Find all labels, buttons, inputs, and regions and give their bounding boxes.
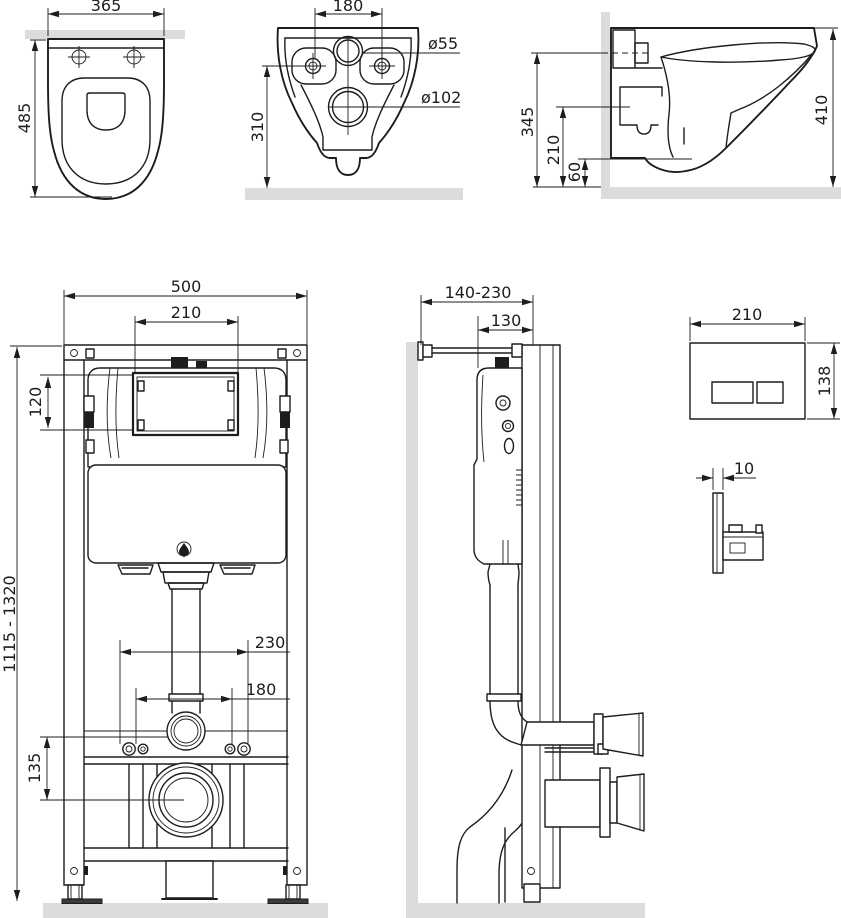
- frame-front-view: 500 210 120 1115 - 1320 230 180 135: [0, 277, 328, 918]
- concealed-cistern: [84, 357, 290, 589]
- frame-side-view: 140-230 130: [406, 283, 645, 918]
- dim-height-range: 1115 - 1320: [0, 575, 19, 672]
- dim-plate-thickness: 10: [734, 459, 754, 478]
- floor-section: [245, 188, 463, 200]
- flush-plate: [690, 343, 805, 419]
- dim-outlet-height: 310: [248, 112, 267, 143]
- plate-profile: [713, 493, 723, 573]
- dim-fixing-spacing-outer: 230: [255, 633, 286, 652]
- flush-pipe: [84, 589, 288, 764]
- floor-section: [601, 187, 841, 199]
- installation-drawing-page: 365 485 180 ø55 ø102 310: [0, 0, 841, 918]
- dim-wall-offset-range: 140-230: [445, 283, 512, 302]
- flush-bend-connector: [158, 563, 214, 589]
- seat-profile: [661, 43, 815, 62]
- inspection-window: [133, 373, 238, 435]
- dim-drain-height: 135: [25, 753, 44, 784]
- bowl-opening: [87, 93, 125, 130]
- flush-plate-side-view: 10: [696, 459, 763, 573]
- plate-mechanism: [723, 525, 763, 560]
- dim-top-depth: 485: [15, 103, 34, 134]
- floor-section: [43, 903, 328, 918]
- wall-section: [406, 342, 418, 917]
- toilet-top-view: 365 485: [15, 0, 185, 199]
- technical-drawing: 365 485 180 ø55 ø102 310: [0, 0, 841, 918]
- mounting-bolt-marks: [68, 46, 145, 68]
- toilet-bowl-outline: [48, 39, 164, 199]
- toilet-back-view: 180 ø55 ø102 310: [245, 0, 463, 200]
- toilet-side-outline: [611, 28, 817, 172]
- cistern-side: [474, 357, 522, 564]
- dim-outlet-height: 210: [544, 135, 563, 166]
- inlet-connector: [613, 30, 635, 68]
- outlet-connector: [620, 87, 662, 134]
- flush-pipe-side: [487, 564, 527, 745]
- dim-plate-width: 210: [732, 305, 763, 324]
- dim-window-width: 210: [171, 303, 202, 322]
- dim-inlet-height: 345: [518, 107, 537, 138]
- toilet-side-view: 345 210 60 410: [518, 12, 841, 199]
- dim-outlet-diameter: ø102: [421, 88, 461, 107]
- dim-depth: 410: [812, 95, 831, 126]
- waste-elbow: [457, 770, 529, 903]
- wall-section: [25, 30, 185, 39]
- seat-ring: [62, 78, 150, 184]
- dim-bolt-spacing: 180: [333, 0, 364, 15]
- dim-rim-clearance: 60: [565, 162, 584, 182]
- dim-frame-width: 500: [171, 277, 202, 296]
- floor-section: [406, 903, 645, 918]
- dim-window-height: 120: [26, 387, 45, 418]
- wall-section: [601, 12, 610, 190]
- dim-inlet-diameter: ø55: [428, 34, 458, 53]
- dim-plate-height: 138: [815, 366, 834, 397]
- fill-valve-cap: [171, 357, 188, 369]
- drain-box: [162, 861, 217, 899]
- flush-plate-front-view: 210 138: [690, 305, 840, 419]
- dim-frame-depth: 130: [491, 311, 522, 330]
- dim-top-width: 365: [91, 0, 122, 15]
- dim-fixing-spacing-inner: 180: [246, 680, 277, 699]
